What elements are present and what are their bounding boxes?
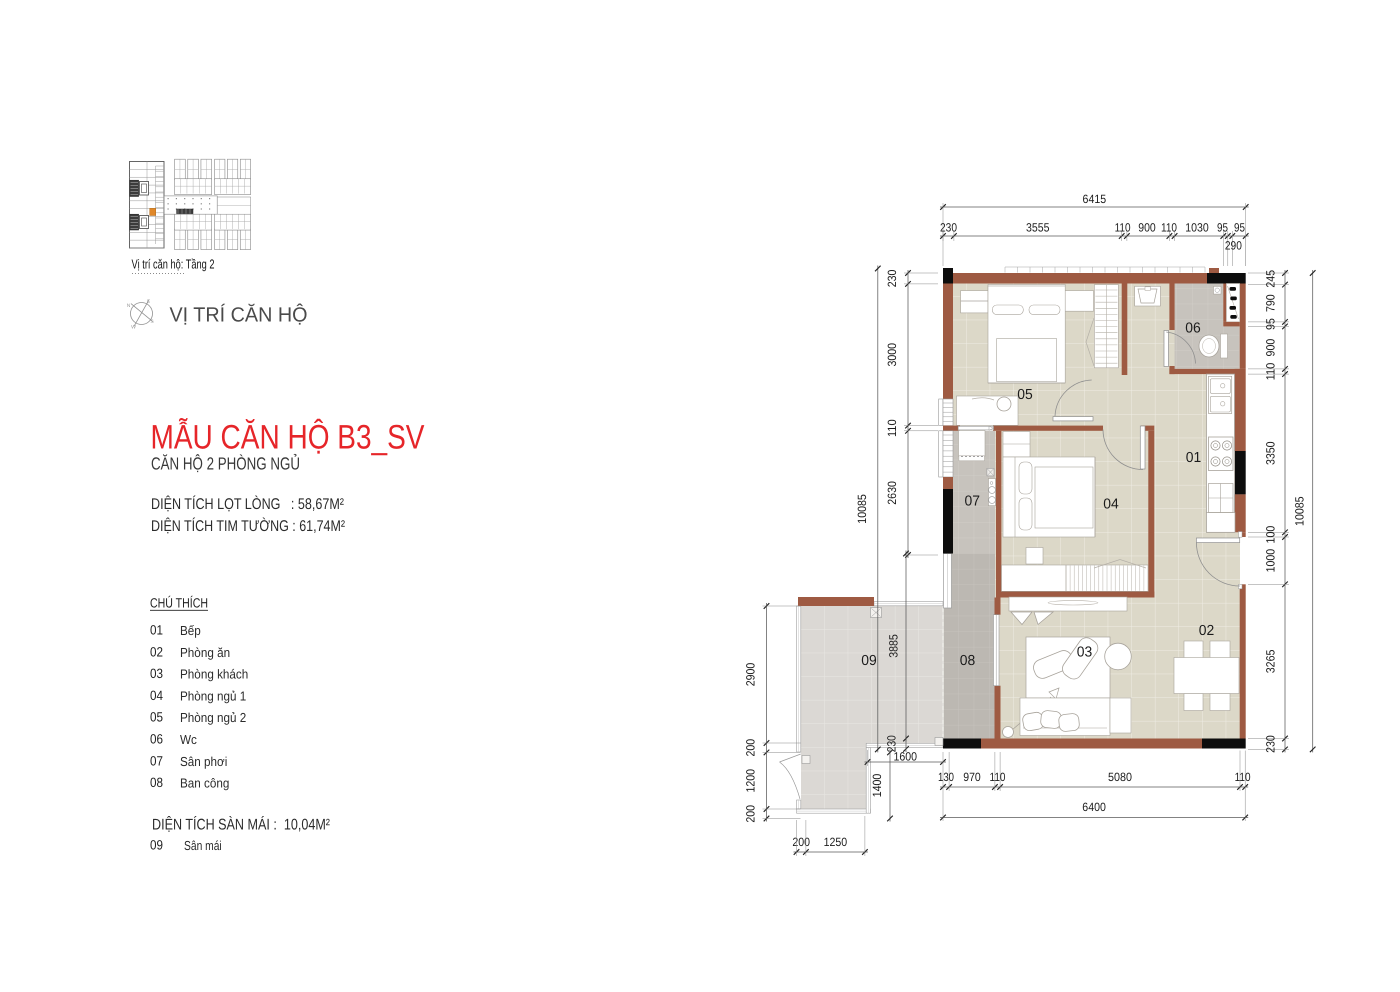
svg-text:Ban công: Ban công — [180, 776, 229, 791]
svg-text:110: 110 — [1115, 221, 1131, 235]
svg-text:3265: 3265 — [1264, 649, 1278, 673]
svg-text:130: 130 — [938, 770, 954, 784]
svg-text:900: 900 — [1138, 221, 1156, 235]
svg-text:1200: 1200 — [744, 769, 758, 793]
svg-text:10085: 10085 — [855, 494, 869, 524]
svg-text:110: 110 — [990, 770, 1006, 784]
svg-text:6400: 6400 — [1082, 800, 1106, 814]
svg-text:1250: 1250 — [824, 835, 848, 849]
svg-text:1600: 1600 — [893, 750, 917, 764]
svg-text:MẪU CĂN HỘ B3_SV: MẪU CĂN HỘ B3_SV — [151, 418, 425, 457]
svg-text:10085: 10085 — [1293, 496, 1307, 526]
svg-text:03: 03 — [150, 666, 163, 681]
svg-text:1030: 1030 — [1185, 221, 1209, 235]
svg-text:DIỆN TÍCH SÀN MÁI : 10,04M²: DIỆN TÍCH SÀN MÁI : 10,04M² — [152, 816, 330, 834]
svg-text:2900: 2900 — [744, 662, 758, 686]
svg-text:05: 05 — [150, 710, 163, 725]
svg-text:02: 02 — [1199, 623, 1215, 639]
svg-text:03: 03 — [1077, 645, 1093, 661]
svg-text:DIỆN TÍCH TIM TƯỜNG : 61,74M²: DIỆN TÍCH TIM TƯỜNG : 61,74M² — [151, 517, 345, 535]
svg-text:Phòng ngủ 2: Phòng ngủ 2 — [180, 710, 246, 725]
svg-text:Sân mái: Sân mái — [184, 838, 222, 853]
svg-text:100: 100 — [1264, 525, 1278, 543]
svg-text:3555: 3555 — [1026, 221, 1050, 235]
svg-text:S: S — [150, 319, 154, 325]
svg-text:01: 01 — [1186, 450, 1202, 466]
svg-text:Sân phơi: Sân phơi — [180, 754, 227, 769]
svg-text:08: 08 — [960, 653, 976, 669]
svg-text:900: 900 — [1264, 338, 1278, 356]
svg-text:95: 95 — [1264, 318, 1278, 330]
svg-text:95: 95 — [1234, 221, 1245, 235]
svg-text:290: 290 — [1225, 239, 1242, 253]
svg-text:Phòng ăn: Phòng ăn — [180, 645, 230, 660]
svg-text:CĂN HỘ 2 PHÒNG NGỦ: CĂN HỘ 2 PHÒNG NGỦ — [151, 454, 300, 474]
svg-text:DIỆN TÍCH LỌT LÒNG : 58,67M²: DIỆN TÍCH LỌT LÒNG : 58,67M² — [151, 495, 344, 513]
svg-text:02: 02 — [150, 644, 163, 659]
svg-text:Vị trí căn hộ: Tầng 2: Vị trí căn hộ: Tầng 2 — [132, 257, 215, 272]
svg-text:2630: 2630 — [885, 481, 899, 505]
svg-text:970: 970 — [963, 770, 981, 784]
svg-text:110: 110 — [1264, 362, 1278, 380]
svg-text:790: 790 — [1264, 294, 1278, 312]
svg-text:110: 110 — [1161, 221, 1177, 235]
svg-text:N: N — [127, 303, 131, 309]
svg-text:CHÚ THÍCH: CHÚ THÍCH — [150, 596, 208, 611]
svg-text:245: 245 — [1264, 270, 1278, 288]
svg-text:01: 01 — [150, 623, 163, 638]
svg-text:1000: 1000 — [1264, 549, 1278, 573]
svg-text:06: 06 — [150, 732, 163, 747]
svg-text:W: W — [131, 325, 136, 331]
svg-text:230: 230 — [940, 221, 957, 235]
svg-text:09: 09 — [150, 838, 163, 853]
svg-text:230: 230 — [885, 269, 899, 287]
svg-text:06: 06 — [1185, 321, 1201, 337]
svg-text:6415: 6415 — [1083, 192, 1107, 206]
svg-text:200: 200 — [744, 805, 758, 823]
svg-text:E: E — [147, 299, 151, 305]
svg-text:230: 230 — [1264, 735, 1278, 753]
svg-text:3350: 3350 — [1264, 441, 1278, 465]
svg-text:200: 200 — [792, 835, 810, 849]
svg-text:08: 08 — [150, 775, 163, 790]
svg-text:Bếp: Bếp — [180, 623, 201, 638]
svg-text:VỊ TRÍ CĂN HỘ: VỊ TRÍ CĂN HỘ — [170, 304, 308, 327]
svg-text:3885: 3885 — [887, 634, 901, 658]
svg-text:07: 07 — [150, 753, 163, 768]
svg-text:Phòng khách: Phòng khách — [180, 667, 248, 682]
svg-text:110: 110 — [1235, 770, 1251, 784]
svg-text:05: 05 — [1017, 387, 1033, 403]
svg-text:04: 04 — [150, 688, 163, 703]
svg-text:110: 110 — [885, 419, 899, 437]
svg-text:1400: 1400 — [870, 773, 884, 797]
svg-text:04: 04 — [1103, 497, 1119, 513]
svg-text:07: 07 — [965, 494, 981, 510]
svg-text:Wc: Wc — [180, 732, 197, 747]
svg-text:3000: 3000 — [885, 343, 899, 367]
svg-text:95: 95 — [1217, 221, 1228, 235]
svg-text:Phòng ngủ 1: Phòng ngủ 1 — [180, 688, 246, 703]
svg-text:5080: 5080 — [1108, 770, 1132, 784]
svg-text:09: 09 — [861, 653, 877, 669]
svg-text:200: 200 — [744, 739, 758, 757]
